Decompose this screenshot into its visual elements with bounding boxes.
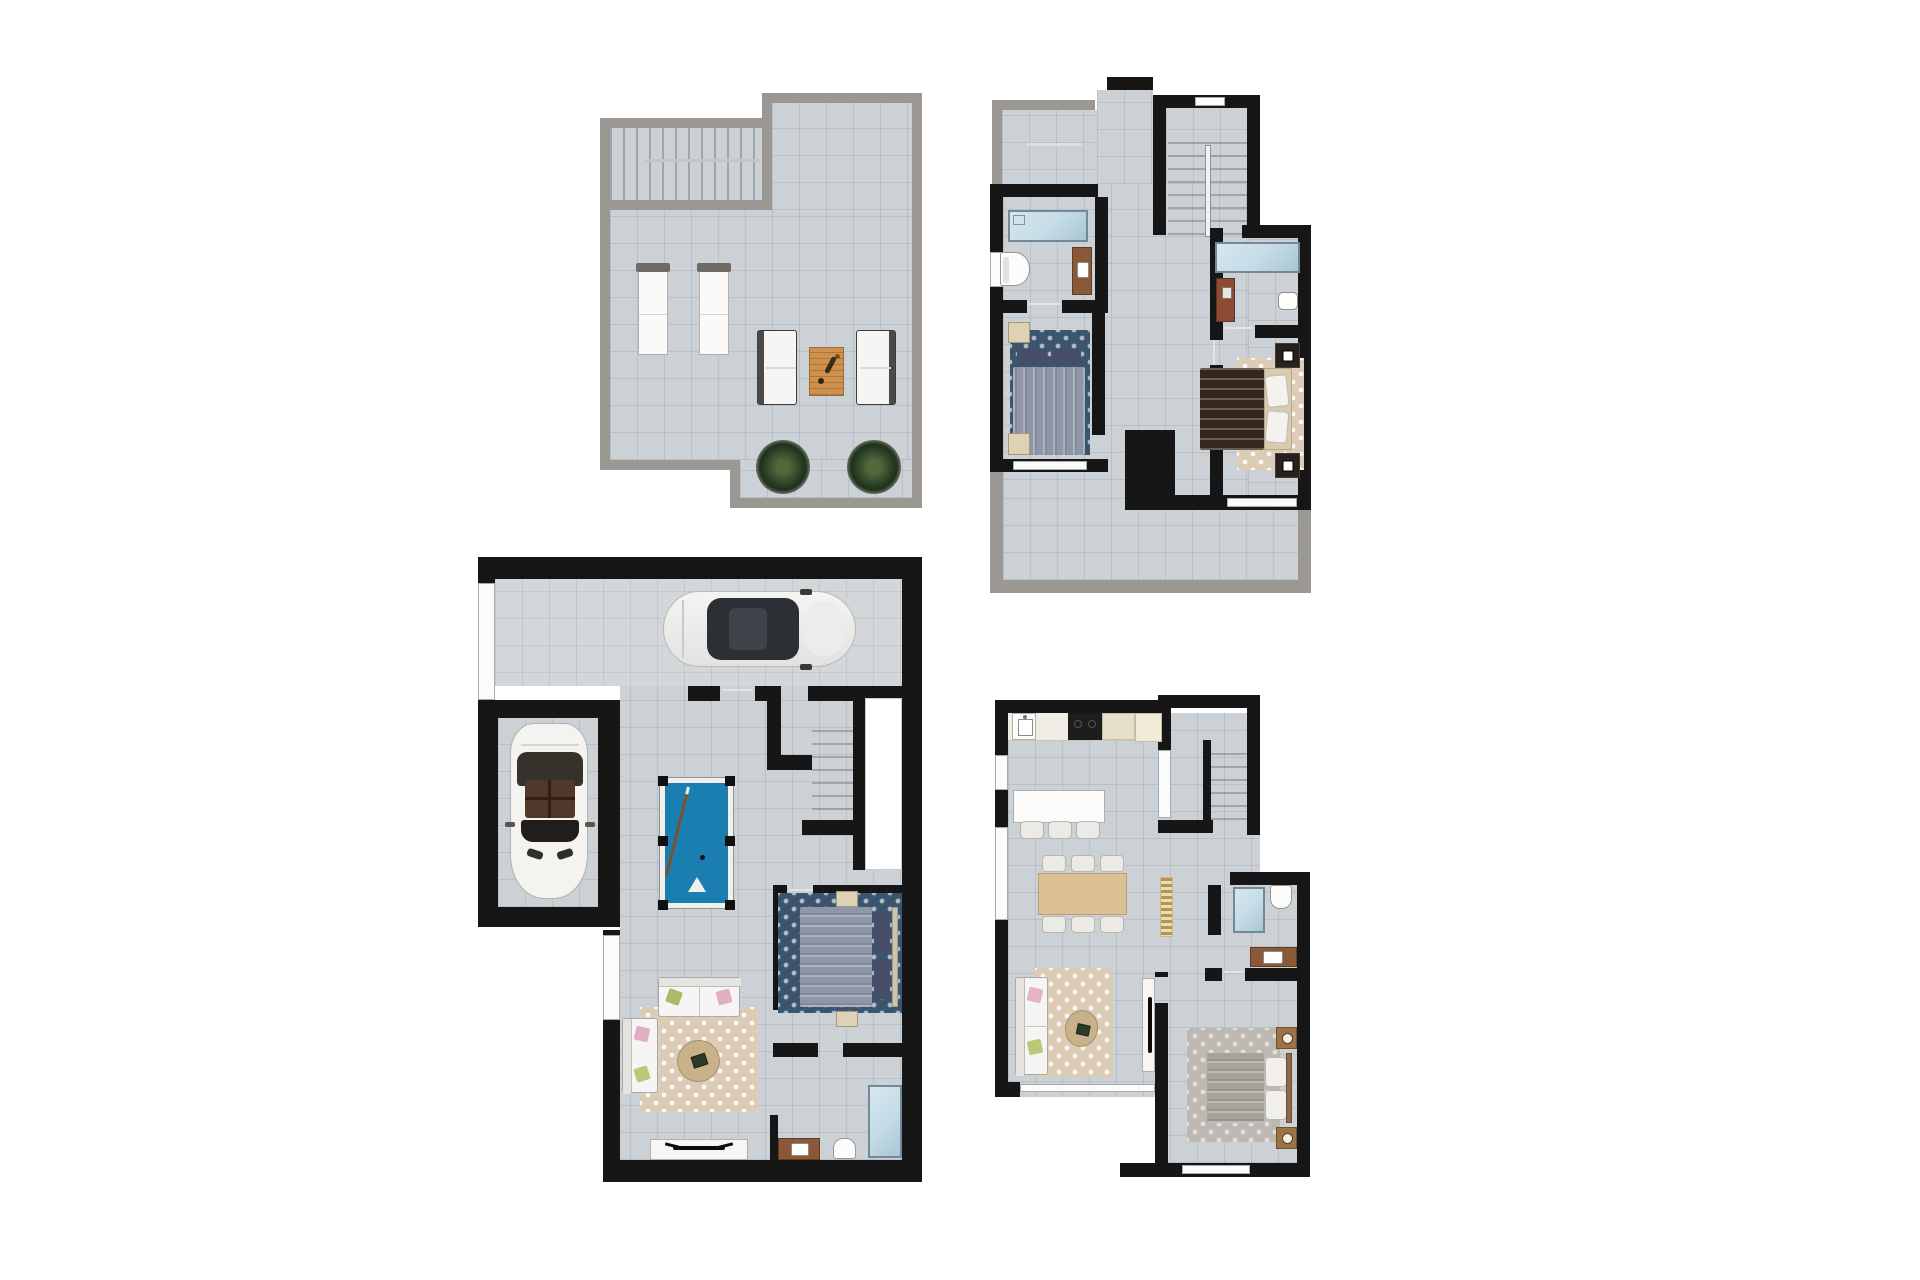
bed-pillow-white [1264,374,1289,408]
upper-terrace-tl-wall-left [992,100,1002,197]
kitchen-cabinet [1102,713,1135,740]
bed-duvet [1207,1053,1264,1123]
dining-chair [1071,916,1095,933]
upper-terrace-rail [1027,143,1082,146]
upper-wall-mid-v1 [1095,197,1108,313]
stairwell-void [865,698,902,870]
bath-wall-top-b [843,1043,902,1057]
upper-terrace-low-wall-bottom [990,580,1310,593]
car-vent [556,848,574,861]
cue-ball [700,855,705,860]
solarium-wall-bottom-left [600,460,740,470]
bed-ground [1207,1053,1292,1123]
ground-bath-wall-left [1208,885,1221,935]
ground-wall-corner-bl [995,1082,1020,1097]
solarium-floor-upper-right [772,103,912,210]
sofa-pillow-green [665,988,683,1006]
upper-window-bed2 [1227,498,1297,507]
nightstand-bed2-b [1275,453,1300,478]
solarium-wall-bottom-ext [730,498,922,508]
bar-stool [1020,821,1044,839]
bed-pillow [1017,349,1047,365]
sofa-pillow-pink [715,988,732,1005]
upper-wall-bath1-top [990,184,1098,197]
upper-terrace-low-wall-right [1298,510,1311,593]
ground-stair-wall-bottom [1158,820,1213,833]
solarium-wall-stair-bottom [600,200,772,210]
plan-basement [478,555,923,1183]
car-windshield [521,820,579,842]
bath-wall-top-a [773,1043,818,1057]
solarium-stair-handrail [645,159,760,162]
nightstand-bed1-b [1008,433,1030,455]
island-bar [1013,790,1105,823]
glass [835,354,840,359]
shower-ground [1233,887,1265,933]
sink-cabinet [1012,713,1036,740]
basement-stair-treads [812,727,853,823]
lounger-headrest [636,263,670,272]
suv-mirror [800,664,812,670]
car-mirror [505,822,515,827]
sink-bath2 [1278,292,1298,310]
ground-stair-wall-right [1247,695,1260,835]
bed-pillow-white [1265,1057,1287,1087]
upper-wall-mid-v2 [1092,313,1105,435]
ground-bath-wall-bottom-b [1245,968,1310,981]
gamesroom-wall-top-a [688,686,720,701]
upper-stair-wall-left [1153,95,1166,235]
garage-wall-right [598,700,620,927]
sofa-pillow-green [633,1065,651,1083]
upper-window-bed1 [1013,461,1087,470]
ground-bath-wall-bottom-a [1205,968,1222,981]
striped-runner [1160,877,1173,937]
sofa-basement-top [658,977,740,1017]
bed-pillow [874,959,890,999]
toilet-ground [1270,885,1292,909]
ground-bath-wall-top [1230,872,1310,885]
upper-door-bed1 [1029,303,1060,305]
upper-terrace-tl-wall-top [992,100,1095,110]
sofa-pillow-pink [634,1026,651,1043]
car-vent [526,848,544,861]
tv-screen [673,1146,725,1150]
car-mirror [585,822,595,827]
upper-stair-window [1195,97,1225,106]
stair-wall-bottom [802,820,865,835]
vanity-bath1 [1072,247,1092,295]
shelf-bath2 [1216,278,1235,322]
suv-hood [804,602,844,656]
bed-bedroom2 [1200,368,1292,450]
glass [818,378,824,384]
ground-bath-door [1224,971,1244,973]
terrace-plant-1 [756,440,810,494]
ball-triangle [688,877,706,892]
basement-wall-top [478,557,922,579]
sun-lounger-1 [638,263,668,355]
car-seats [525,780,575,818]
convertible-car [510,723,588,899]
upper-door-bed2 [1213,341,1215,365]
suv-car [663,591,856,667]
solarium-wall-top-right [762,93,922,103]
toilet-basement [833,1138,856,1159]
dining-chair [1071,855,1095,872]
ground-window-living-bottom [1020,1084,1155,1092]
solarium-wall-stair-left [600,118,610,210]
suv-mirror [800,589,812,595]
ground-stair-treads [1211,745,1247,820]
upper-wall-top-mid [1107,77,1153,90]
upper-wall-column [1125,430,1175,510]
nightstand-ground-b [1276,1127,1297,1149]
plan-ground-floor [990,695,1315,1183]
dining-chair [1042,916,1066,933]
solarium-wall-stair-top [600,118,772,128]
tv-unit-basement [650,1139,748,1160]
bed-basement [800,907,898,1007]
bed-pillow-white [1265,410,1290,444]
bottle [824,356,837,374]
upper-wall-bed1-top-a [995,300,1027,313]
upper-stair-wall-right [1247,95,1260,238]
nightstand-ground-a [1276,1027,1297,1049]
cooktop [1068,713,1102,740]
suv-roof [707,598,799,660]
upper-wall-bed1-top-b [1062,300,1098,313]
solarium-wall-stair-right [762,103,772,207]
ground-wall-top [995,700,1165,713]
bed-headboard [1286,1053,1292,1123]
sofa-pillow-pink [1027,987,1044,1004]
gamesroom-door [722,689,753,691]
bar-stool [1048,821,1072,839]
bed-duvet [800,907,872,1007]
garage-wall-left [478,700,498,927]
bed-headboard [892,907,898,1007]
upper-door-bath2 [1225,327,1253,329]
shower-basement [868,1085,902,1158]
cue-stick [665,787,690,877]
dining-chair [1100,916,1124,933]
nightstand-basement-b [836,1011,858,1027]
nightstand-bed2-a [1275,343,1300,368]
basement-wall-corner-tl [478,557,495,583]
dining-chair [1042,855,1066,872]
upper-floor-top-mid [1097,90,1153,184]
garage-wall-bottom [478,907,620,927]
solarium-wall-right [912,93,922,508]
dining-chair [1100,855,1124,872]
stair-wall-right [853,698,865,870]
tv-screen [1148,997,1152,1053]
plan-upper-floor [987,75,1319,597]
shower-bath2 [1215,242,1300,273]
toilet-bath1 [1000,252,1030,286]
floorplan-sheet [0,0,1920,1280]
upper-stair-rail [1205,145,1211,237]
ground-stair-wall-top [1158,695,1260,708]
solarium-stair-floor [610,128,762,200]
vanity-ground [1250,947,1297,967]
sun-lounger-2 [699,263,729,355]
outside-mask [1260,695,1315,872]
billiard-table [660,778,733,908]
solarium-wall-left [600,210,610,470]
ground-window-left-b [995,827,1008,920]
tv-unit-ground [1142,978,1155,1072]
bed-pillow-white [1265,1090,1287,1120]
dining-table [1038,873,1127,915]
plan-roof-solarium [600,90,922,515]
ground-wall-mid-b [1155,1003,1168,1177]
bedroom-door [789,889,813,891]
basement-wall-right [902,557,922,1180]
kitchen-counter [1008,713,1162,741]
sofa-ground [1015,977,1048,1075]
driveway-window-left [478,583,495,700]
sofa-pillow-green [1027,1039,1044,1056]
basement-wall-bottom [603,1160,922,1182]
terrace-coffee-table [809,347,844,396]
bath-wall-stub [770,1115,778,1160]
ground-stair-divider [1203,740,1211,820]
bathtub [1008,210,1088,242]
nightstand-bed1-a [1008,322,1030,343]
bed-duvet-brown [1200,368,1264,450]
ground-window-bed [1182,1165,1250,1174]
kitchen-cabinet [1135,713,1162,742]
nightstand-basement-a [836,891,858,907]
living-window-left [603,935,620,1020]
upper-wall-left-b [990,287,1003,472]
lounger-headrest [697,263,731,272]
bed-pillow [1051,349,1081,365]
bed-pillow [874,913,890,953]
vanity-basement [778,1138,820,1160]
ground-stair-window [1158,750,1171,818]
terrace-lounge-chair-right [856,330,896,405]
bar-stool [1076,821,1100,839]
hall-wall-h [772,755,812,770]
ground-window-left-a [995,755,1008,790]
sofa-basement-left [622,1018,658,1093]
ground-wall-mid-a [1155,972,1168,977]
upper-wall-bath2-bottom [1255,325,1310,338]
ground-wall-right [1297,872,1310,1177]
terrace-plant-2 [847,440,901,494]
upper-terrace-low-wall-left [990,472,1003,593]
terrace-lounge-chair-left [757,330,797,405]
upper-wall-left-a [990,184,1003,252]
